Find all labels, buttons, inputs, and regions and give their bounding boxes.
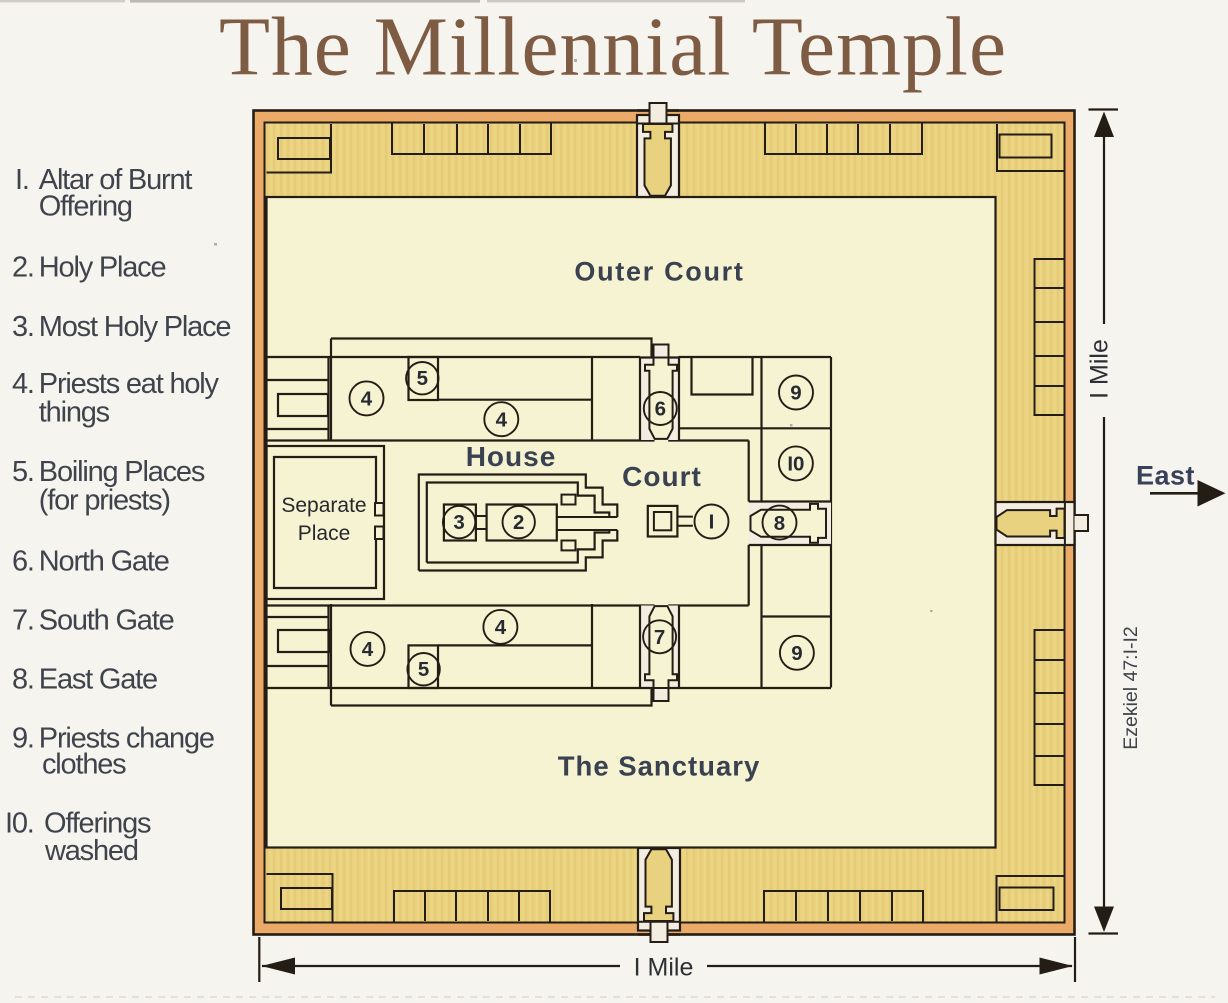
svg-text:5: 5	[417, 367, 428, 390]
svg-text:9: 9	[791, 642, 802, 665]
svg-text:5.Boiling Places: 5.Boiling Places	[12, 456, 205, 488]
svg-text:The Millennial Temple: The Millennial Temple	[219, 2, 1007, 94]
svg-text:9: 9	[790, 382, 801, 405]
svg-text:5: 5	[418, 658, 429, 681]
svg-text:clothes: clothes	[42, 748, 126, 780]
svg-text:House: House	[466, 441, 557, 472]
svg-text:Offering: Offering	[39, 190, 132, 222]
svg-text:I0: I0	[787, 453, 804, 476]
svg-text:3.Most Holy Place: 3.Most Holy Place	[12, 311, 230, 343]
svg-text:8: 8	[774, 512, 785, 535]
svg-text:4: 4	[496, 408, 508, 431]
svg-text:The Sanctuary: The Sanctuary	[558, 751, 761, 782]
svg-text:things: things	[39, 397, 110, 429]
svg-text:Court: Court	[622, 461, 702, 492]
svg-text:4: 4	[361, 388, 373, 411]
svg-text:Outer Court: Outer Court	[574, 257, 744, 287]
svg-text:(for priests): (for priests)	[39, 485, 170, 517]
svg-text:2: 2	[513, 511, 524, 534]
svg-text:Place: Place	[298, 522, 351, 545]
svg-text:7: 7	[654, 626, 665, 649]
svg-text:4: 4	[495, 616, 507, 639]
svg-text:6: 6	[655, 398, 666, 421]
svg-text:Ezekiel 47:I-I2: Ezekiel 47:I-I2	[1120, 626, 1142, 750]
svg-text:4: 4	[362, 638, 374, 661]
svg-text:8.East Gate: 8.East Gate	[12, 664, 157, 696]
svg-text:I Mile: I Mile	[1086, 339, 1114, 399]
svg-text:I Mile: I Mile	[634, 953, 694, 981]
svg-text:East: East	[1136, 461, 1195, 491]
svg-text:washed: washed	[44, 835, 138, 867]
svg-text:Separate: Separate	[281, 494, 366, 517]
svg-text:4.Priests eat holy: 4.Priests eat holy	[12, 368, 220, 400]
svg-text:I: I	[709, 511, 715, 534]
svg-text:3: 3	[453, 511, 464, 534]
